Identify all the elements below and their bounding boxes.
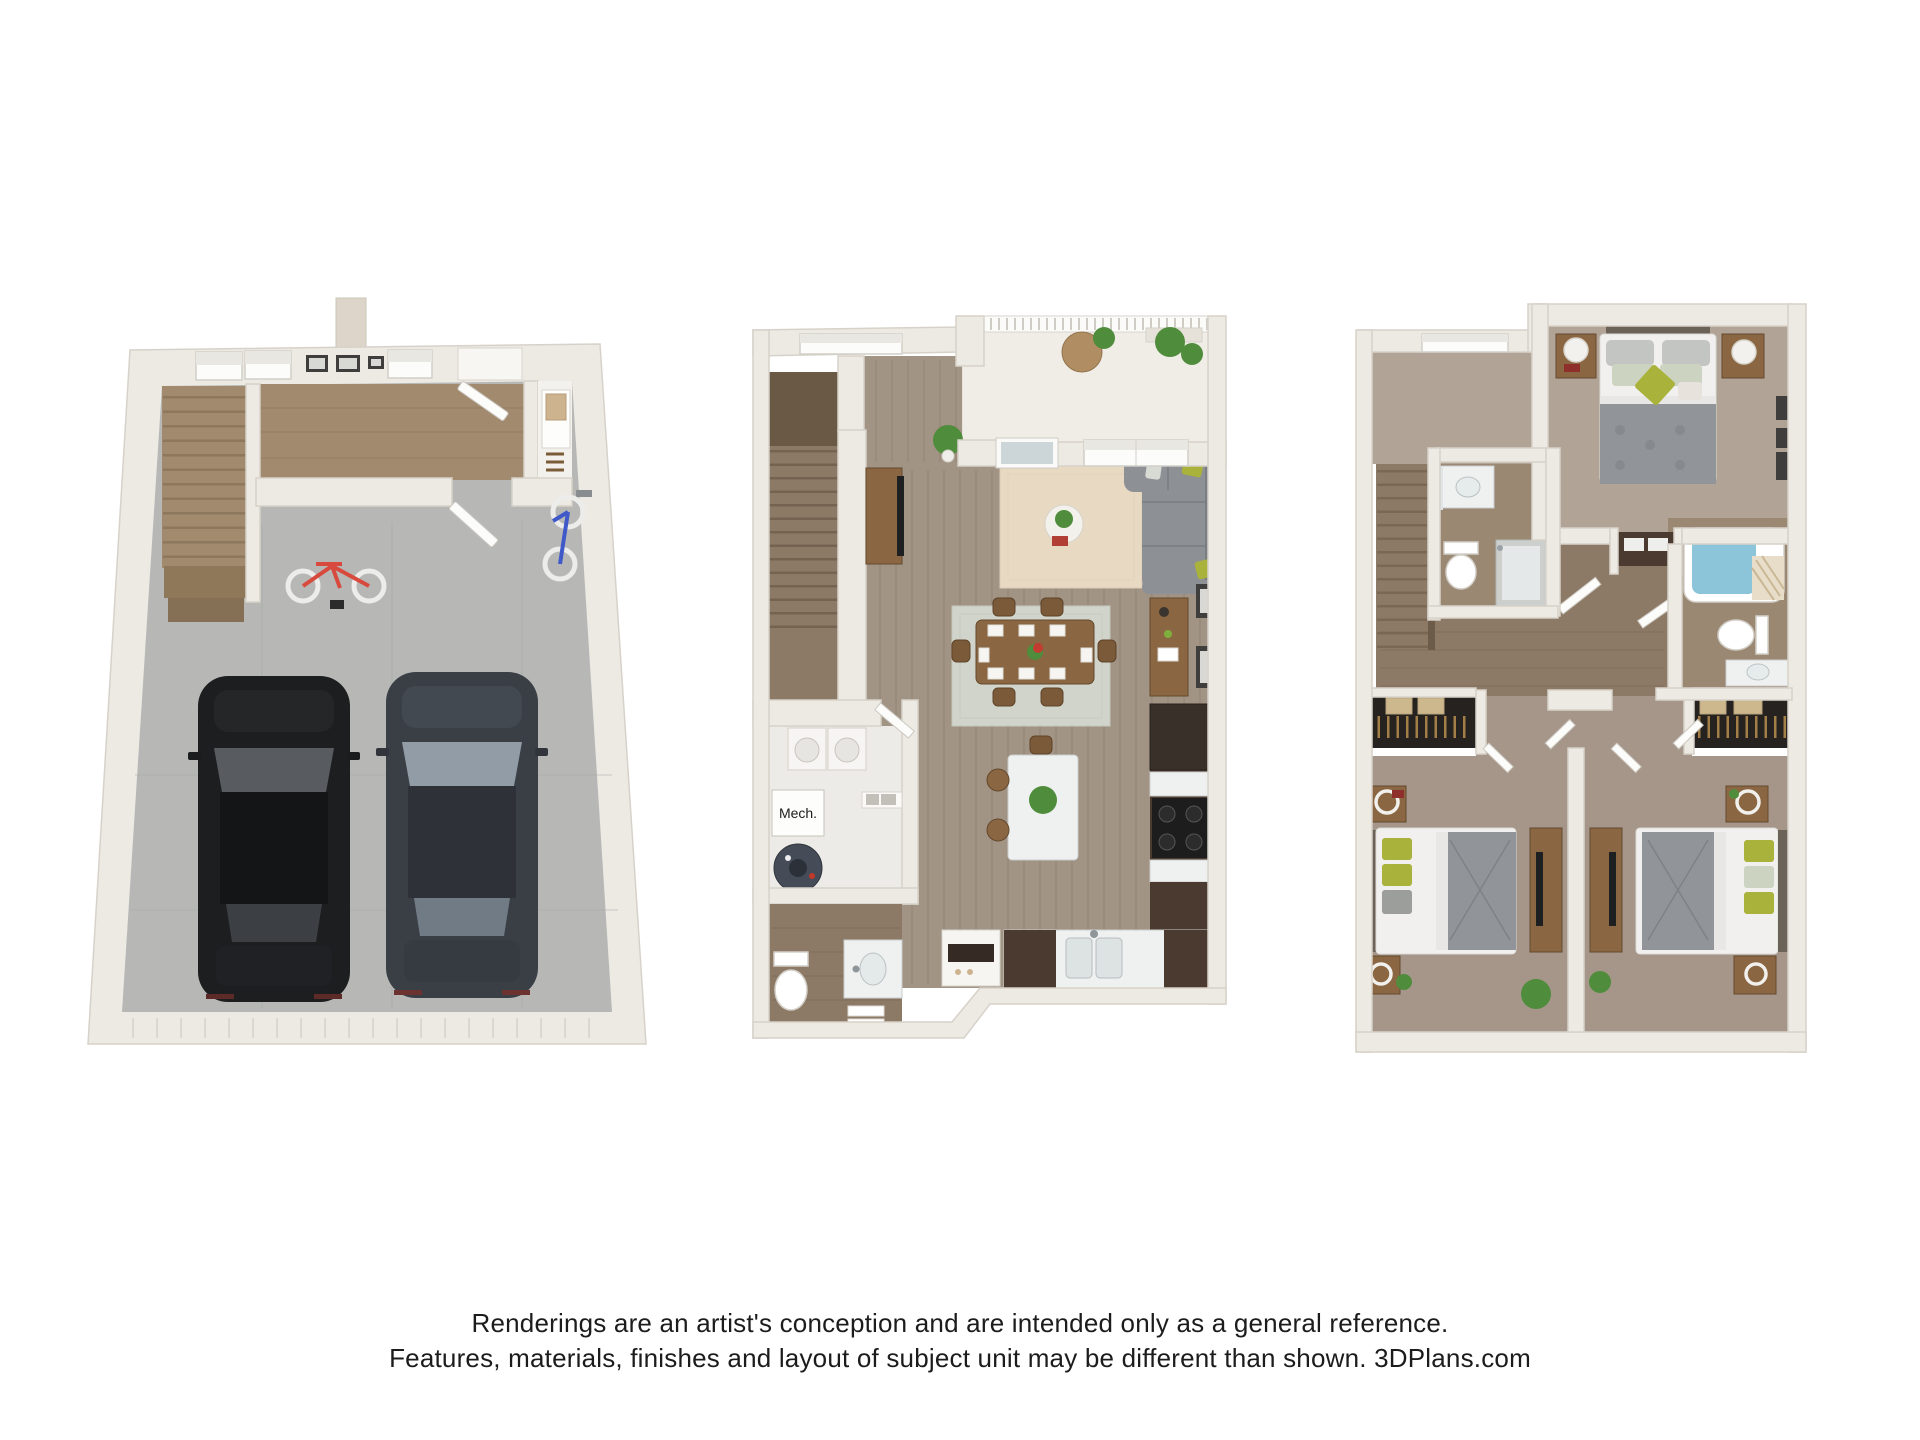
desk [1530,828,1562,952]
book [1052,536,1068,546]
floor-plant [1521,979,1551,1009]
sink-basin [1096,938,1122,978]
dining-area [952,598,1116,726]
floorplan-garage-level [75,285,690,1075]
suitcase [546,394,566,420]
bench-cubby [942,930,1000,986]
disclaimer: Renderings are an artist's conception an… [0,1306,1920,1376]
sink-basin [1066,938,1092,978]
closet-divider-wall [524,381,538,480]
tv [1536,852,1543,926]
disclaimer-line-2: Features, materials, finishes and layout… [0,1341,1920,1376]
hallway-floor [1376,614,1668,696]
pillow [1606,340,1654,366]
toilet-tank [1444,542,1478,554]
toilet-bowl [1446,555,1476,589]
nightstand [1734,956,1776,994]
stair-half-wall [838,430,866,722]
stairs-to-entry [162,384,260,622]
island-chair [1030,736,1052,754]
toilet-tank [1756,616,1768,654]
bedroom-divider-wall [1568,748,1584,1032]
entry-hall [256,381,572,480]
main-level-drawing: Mech. [750,308,1250,1056]
buffet [1150,598,1188,696]
master-closet-nook [1618,532,1674,566]
lamp [1564,338,1588,362]
desk [1590,828,1622,952]
tv [897,476,904,556]
toilet-bowl [1718,620,1754,650]
mech-room-label: Mech. [779,805,817,821]
cooktop [1152,798,1208,858]
bedroom-level-drawing [1330,295,1822,1067]
car-gray [376,672,548,998]
headboard [1778,830,1788,952]
pillow [1382,838,1412,860]
floorplan-sheet: Mech. [0,0,1920,1440]
garage-level-drawing [75,285,690,1075]
lamp [1732,340,1756,364]
balcony [962,316,1214,452]
stool [987,769,1009,791]
pillow [1744,840,1774,862]
toilet-tank [774,952,808,966]
tv [1609,852,1616,926]
car-black [188,676,360,1002]
stairs-to-main [768,356,866,722]
floorplan-main-level: Mech. [750,308,1250,1056]
disclaimer-line-1: Renderings are an artist's conception an… [0,1306,1920,1341]
stool [987,819,1009,841]
floorplan-bedroom-level [1330,295,1822,1067]
toilet-bowl [775,970,807,1010]
powder-room [769,904,902,1027]
faucet [1090,930,1098,938]
pillow [1662,340,1710,366]
fridge [1150,704,1210,770]
bath-mat [848,1006,884,1016]
tv-console [866,468,902,564]
floor-plant [1589,971,1611,993]
mech-laundry-room: Mech. [753,700,918,904]
